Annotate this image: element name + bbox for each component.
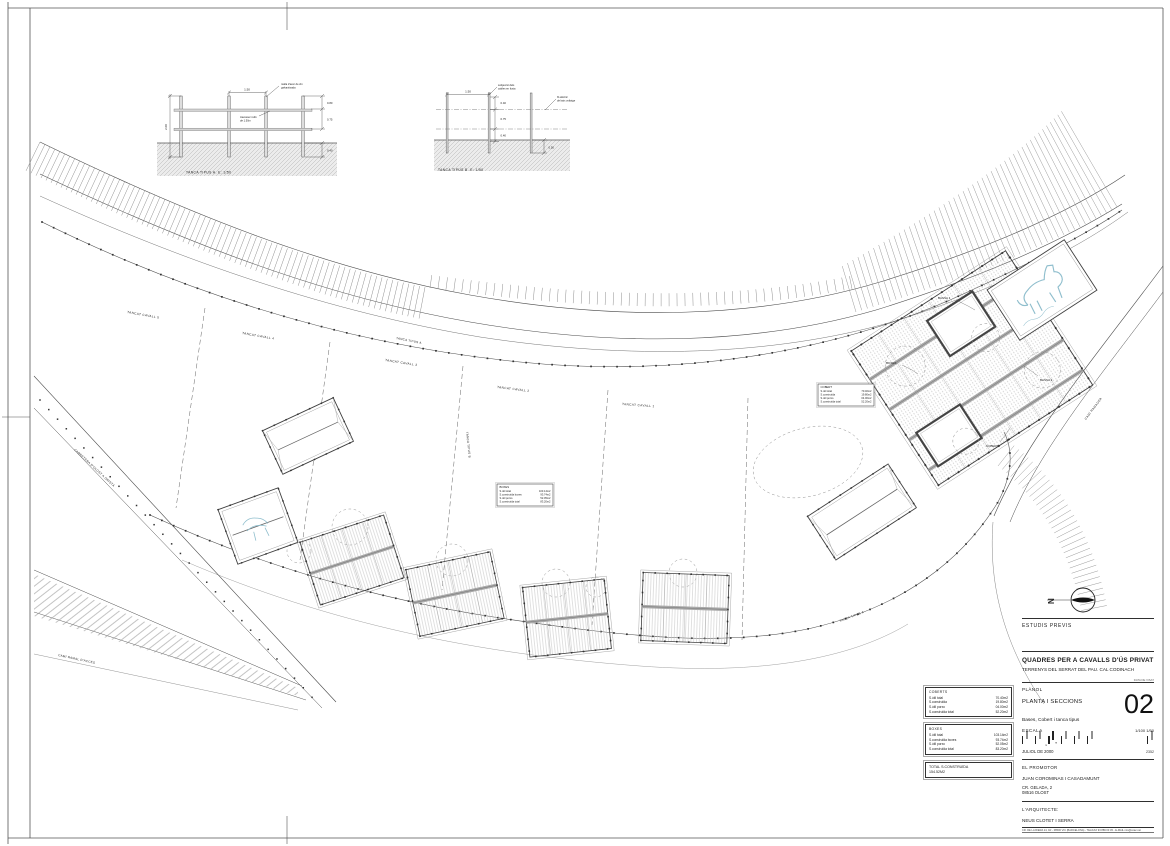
graphic-scale: m [1022,736,1154,747]
table-total: TOTAL S.CONSTRUÏDA 154.52M2 [925,762,1012,778]
svg-text:S.útil porxo: S.útil porxo [821,396,835,400]
svg-text:COBERT: COBERT [821,385,833,389]
note-fix-line2: cables en fusta [498,87,516,91]
note-fix-line1: subjecció dels [498,83,515,87]
dim-span: 1.50 [465,90,471,94]
legend-box-boxes: BOXES S.útil total103.14m2 S.construïda … [496,483,555,508]
svg-text:52.05m2: 52.05m2 [540,496,551,500]
svg-text:04.00m2: 04.00m2 [861,396,872,400]
architect-label: L'ARQUITECTE: [1022,807,1154,812]
fence-detail-a: 1.50 2.00 0.80 0.75 0.40 malla d'acer de… [157,82,337,176]
svg-text:S.útil porxo: S.útil porxo [500,496,514,500]
cluster-label-bassa1: BASSA 1 [938,296,951,300]
table-coberts: COBERTS S.útil total70.40m2 S.construïda… [925,687,1012,717]
svg-text:S.útil total: S.útil total [500,489,512,493]
promoter-label: EL PROMOTOR [1022,765,1154,770]
expedient-number: 2352 [1146,750,1154,754]
cluster-label-boxes: BOXES [886,361,896,365]
scale-values: 1/100 1/50 [1135,728,1154,733]
road-label-right: CAMÍ RAMADER [1084,396,1104,420]
ground-hatch [157,143,337,176]
svg-text:S.construïda: S.construïda [821,393,836,397]
table-title: BOXES [929,727,1008,731]
dim-top: 0.40 [501,101,507,105]
svg-text:S.útil total: S.útil total [821,389,833,393]
svg-text:93.74m2: 93.74m2 [540,493,551,497]
note-mesh-line2: galvanitzada [281,86,296,90]
plot-label-1: TANCAT CAVALL 1 [622,402,655,408]
table-row: S.construïda total52.20m2 [929,710,1008,715]
dim-height: 2.00 [164,124,168,130]
building-stable-2 [403,549,507,639]
architect-name: NEUS CLOTET I SERRA [1022,818,1154,823]
building-cobert-b [217,487,299,565]
svg-text:19.80m2: 19.80m2 [861,393,872,397]
dim-mid: 0.75 [501,117,507,121]
fence-b-plan-label: TANCA TIPUS B [465,432,472,458]
architect-contact: CR. DE LA RIERA 14, 1R - 08500 VIC (BARC… [1022,829,1154,832]
road-label-upper-left: CARRETERA D'OLOST A ORISTÀ [73,448,115,488]
legend-box-cobert: COBERT S.útil total70.40m2 S.construïda1… [817,383,876,408]
north-arrow: N [1047,588,1095,612]
plot-label-2: TANCAT CAVALL 2 [497,385,530,393]
svg-text:83.20m2: 83.20m2 [540,499,551,503]
title-block: ESTUDIS PREVIS QUADRES PER A CAVALLS D'Ú… [1022,618,1154,833]
building-stable-4 [638,570,731,646]
slope-hatch-mid [430,275,856,306]
svg-text:S.construïda boxes: S.construïda boxes [500,493,523,497]
svg-text:S.construïda total: S.construïda total [821,399,842,403]
dim-span: 1.50 [244,88,250,92]
project-location: TERRENYS DEL SERRAT DEL PAU. CAL CODINAC… [1022,667,1154,672]
building-stable-3 [520,576,614,660]
dim-low: 0.40 [501,134,507,138]
table-title: COBERTS [929,690,1008,694]
plot-label-5: TANCAT CAVALL 5 [127,310,160,320]
sheet-number: 02 [1124,692,1154,716]
svg-text:S.construïda total: S.construïda total [500,499,521,503]
drawing-date: JULIOL DE 2000 [1022,749,1054,754]
building-porxo [807,463,918,561]
area-summary: COBERTS S.útil total70.40m2 S.construïda… [925,687,1012,785]
note-mesh-line1: malla d'acer de 2m [281,82,303,86]
road-slope-hatch [34,574,298,696]
north-label: N [1047,598,1056,604]
building-stable-1 [297,512,407,608]
plot-label-3: TANCAT CAVALL 3 [385,358,418,367]
promoter-name: JUAN COROMINAS I CASADAMUNT [1022,776,1154,781]
plot-label-4: TANCAT CAVALL 4 [242,331,275,341]
table-boxes: BOXES S.útil total103.14m2 S.construïda … [925,724,1012,754]
svg-text:52.20m2: 52.20m2 [861,399,872,403]
promoter-address-line2: 08516 OLOST [1022,790,1154,795]
site-plan: BASSA 1 BOXES BASSA 2 COBERT TANCAT CAVA… [26,111,1163,710]
note-rail-line1: travesser rodó [240,115,257,119]
promoter-address: CR. GELADA, 2 08516 OLOST [1022,785,1154,796]
cluster-label-bassa2: BASSA 2 [1040,378,1053,382]
project-title: QUADRES PER A CAVALLS D'ÚS PRIVAT [1022,657,1154,664]
svg-text:BOXES: BOXES [500,485,510,489]
dim-depth: 0.40 [327,149,333,153]
fence-label-bottom: TANCA TIPUS A [839,610,865,623]
fence-label-top: TANCA TIPUS A [396,336,422,345]
dim-mid: 0.75 [327,118,333,122]
drawing-sheet: 1.50 2.00 0.80 0.75 0.40 malla d'acer de… [0,0,1170,846]
cluster-label-cobert: COBERT [986,444,999,448]
sheet-title: PLANTA I SECCIONS [1022,699,1082,705]
note-wire-line2: de baix voltatge [557,99,576,103]
note-wire-line1: fil elèctric [557,95,569,99]
fence-b-caption: TANCA TIPUS B. E: 1/50 [438,168,484,172]
svg-text:70.40m2: 70.40m2 [861,389,872,393]
slope-hatch-right [998,446,1107,614]
dim-depth: 0.50 [549,146,555,150]
total-value: 154.52M2 [929,770,1008,775]
fence-a-caption: TANCA TIPUS A. E: 1/50 [186,171,231,175]
table-row: S.construïda total83.20m2 [929,747,1008,752]
svg-text:103.14m2: 103.14m2 [539,489,551,493]
fence-detail-b: 1.50 0.40 0.75 0.40 0.50 subjecció dels … [434,83,576,172]
building-cobert-a [262,397,355,475]
dim-top: 0.80 [327,101,333,105]
scale-label: ESCALA [1022,728,1043,733]
note-rail-line2: de 1.50m [240,119,251,123]
